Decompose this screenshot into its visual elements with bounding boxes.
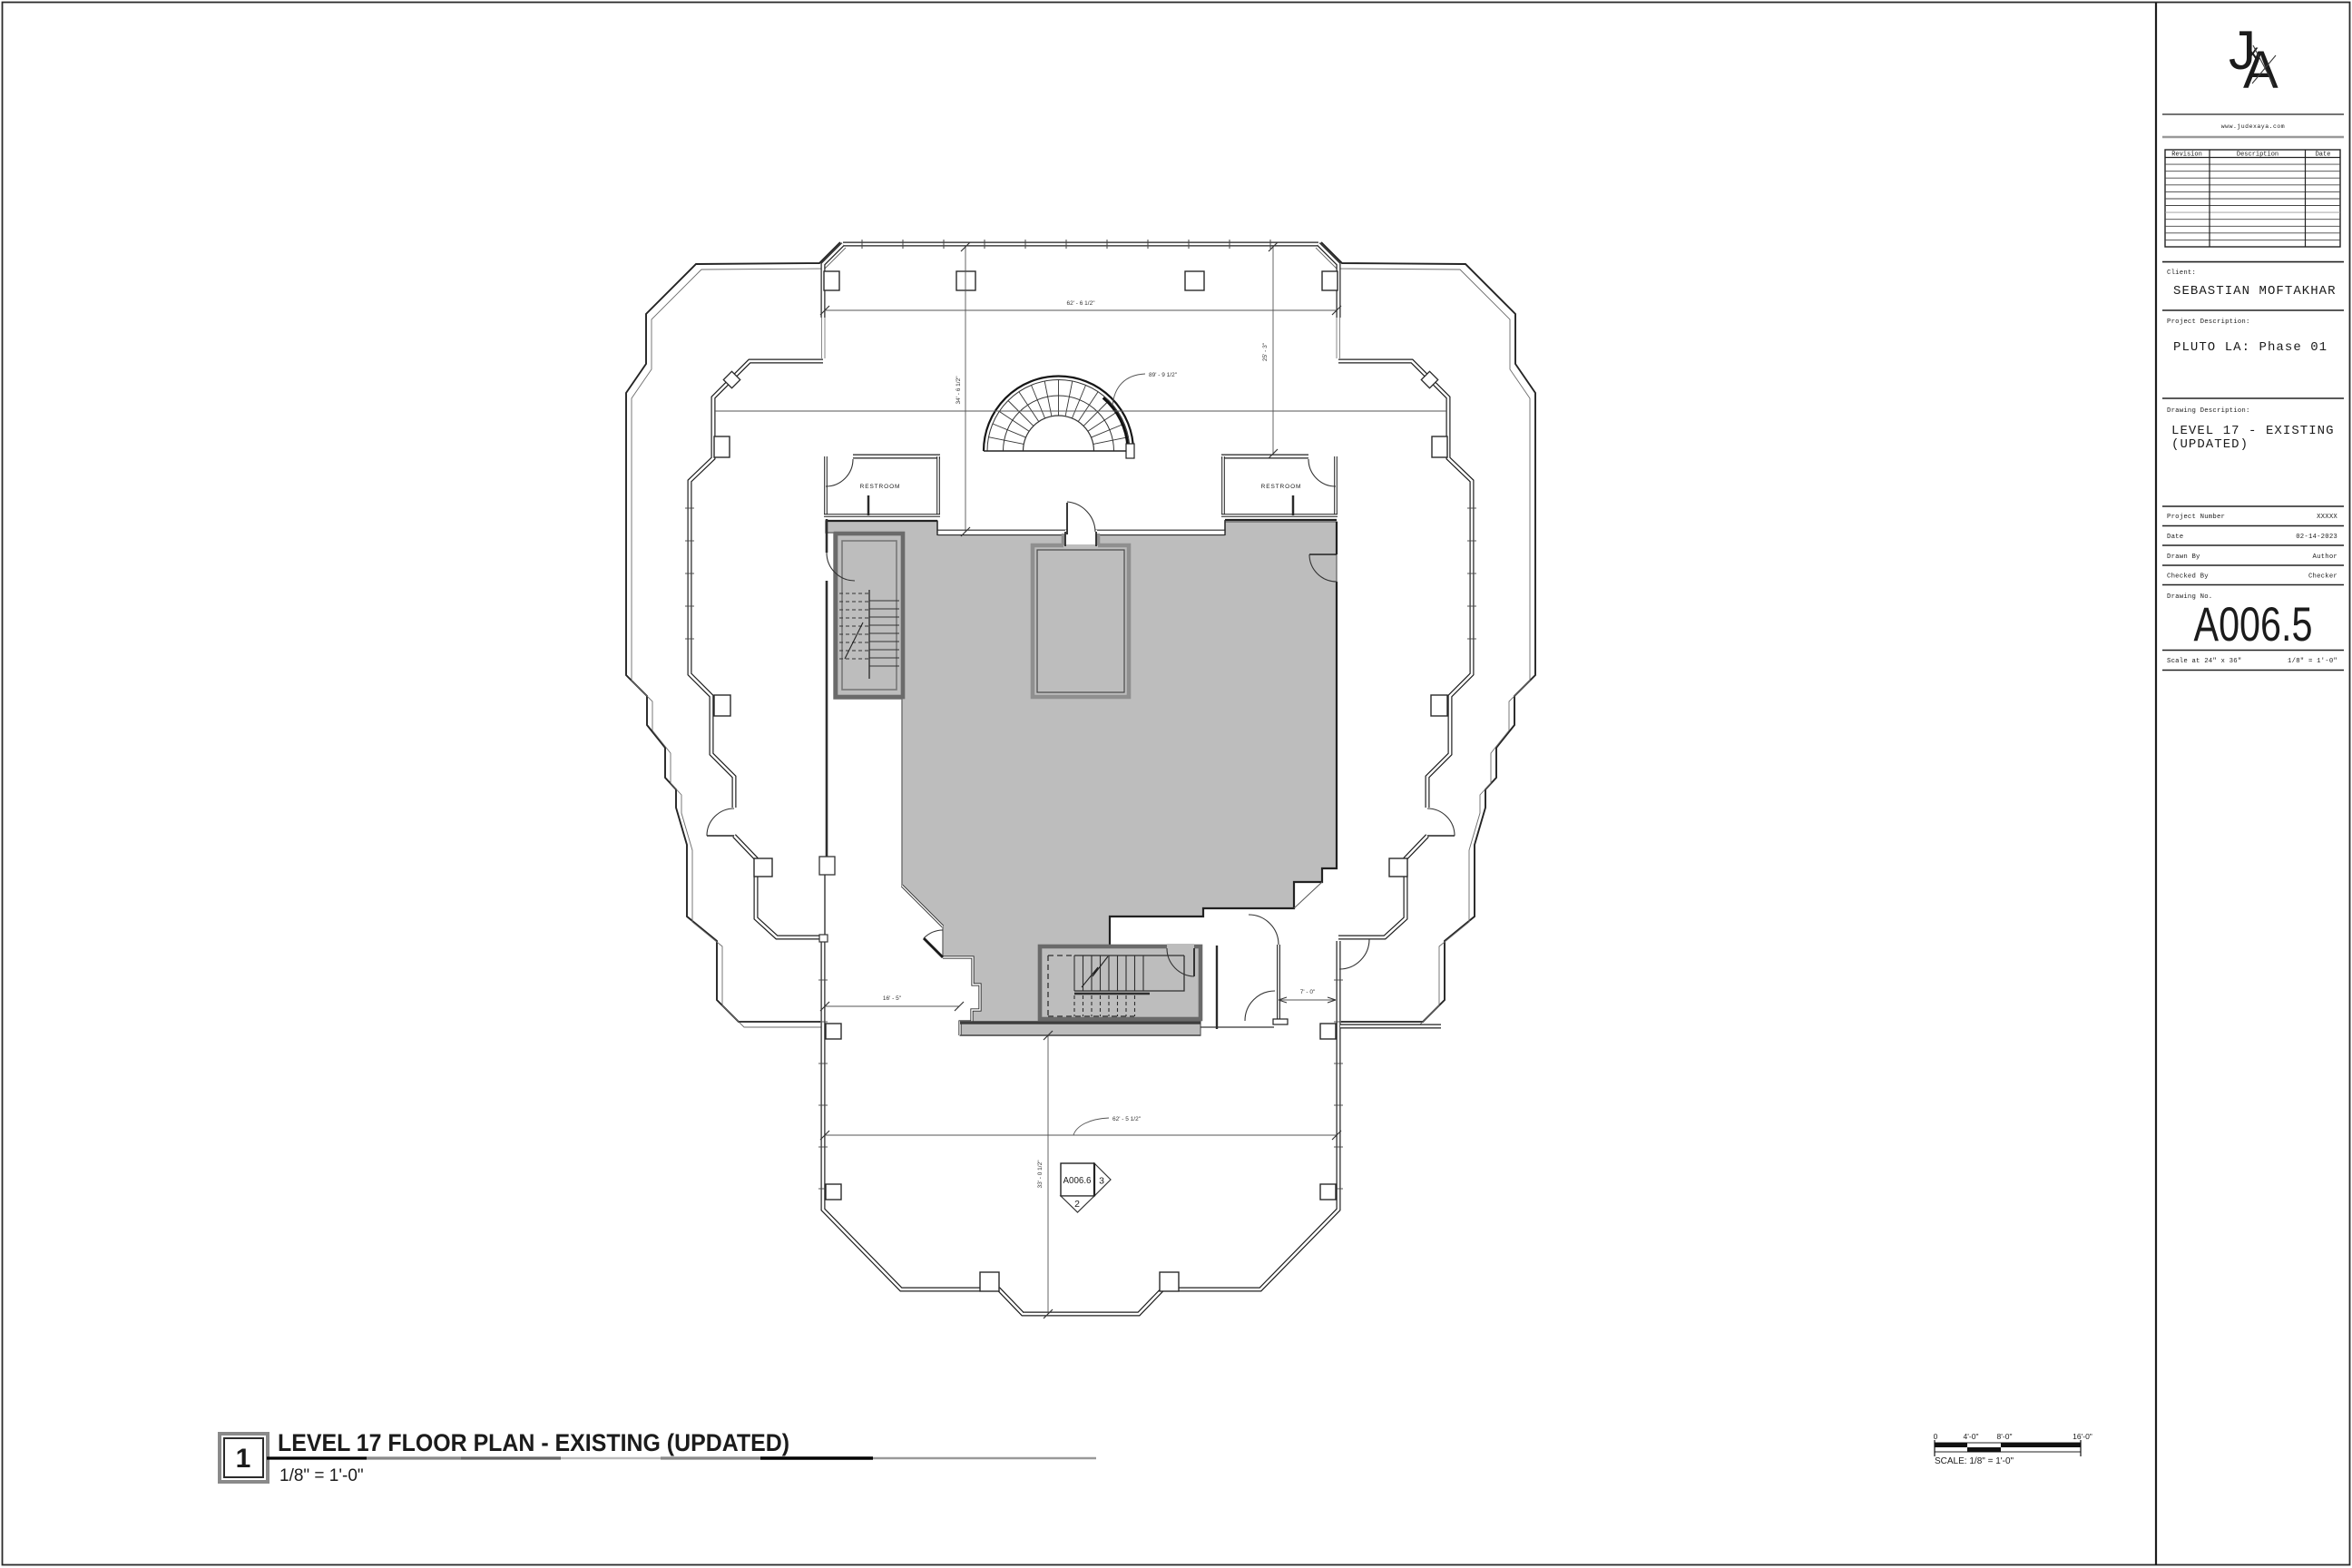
- svg-text:1/8" = 1'-0": 1/8" = 1'-0": [279, 1466, 364, 1485]
- svg-text:16' - 5": 16' - 5": [883, 995, 902, 1002]
- svg-text:62' - 5 1/2": 62' - 5 1/2": [1112, 1116, 1142, 1122]
- svg-text:Drawn By: Drawn By: [2167, 554, 2200, 561]
- svg-text:Drawing Description:: Drawing Description:: [2167, 407, 2250, 415]
- svg-text:Description: Description: [2237, 152, 2278, 159]
- svg-text:A: A: [2243, 41, 2278, 100]
- svg-text:Checker: Checker: [2308, 573, 2337, 581]
- svg-text:3: 3: [1099, 1176, 1104, 1187]
- svg-text:A006.6: A006.6: [1063, 1176, 1092, 1186]
- svg-text:Date: Date: [2316, 152, 2331, 159]
- svg-text:62' - 6 1/2": 62' - 6 1/2": [1066, 300, 1095, 307]
- svg-text:34' - 6 1/2": 34' - 6 1/2": [955, 376, 962, 405]
- svg-text:Client:: Client:: [2167, 269, 2196, 277]
- svg-text:PLUTO LA: Phase 01: PLUTO LA: Phase 01: [2173, 340, 2327, 355]
- svg-text:8'-0": 8'-0": [1997, 1432, 2013, 1441]
- svg-text:16'-0": 16'-0": [2073, 1432, 2092, 1441]
- svg-text:Revision: Revision: [2171, 152, 2202, 159]
- svg-text:RESTROOM: RESTROOM: [1261, 484, 1302, 490]
- svg-text:02-14-2023: 02-14-2023: [2296, 534, 2337, 541]
- svg-text:Checked By: Checked By: [2167, 573, 2209, 581]
- svg-text:2: 2: [1074, 1199, 1080, 1210]
- svg-text:1: 1: [236, 1444, 251, 1474]
- svg-text:SCALE: 1/8" = 1'-0": SCALE: 1/8" = 1'-0": [1935, 1456, 2014, 1466]
- svg-text:25' - 3": 25' - 3": [1262, 342, 1269, 361]
- svg-text:SEBASTIAN MOFTAKHAR: SEBASTIAN MOFTAKHAR: [2173, 284, 2337, 299]
- svg-text:www.judexaya.com: www.judexaya.com: [2221, 123, 2285, 130]
- svg-text:Scale at 24" x 36": Scale at 24" x 36": [2167, 658, 2241, 665]
- svg-text:4'-0": 4'-0": [1964, 1432, 1979, 1441]
- svg-text:89' - 9 1/2": 89' - 9 1/2": [1149, 372, 1178, 378]
- svg-text:0: 0: [1934, 1432, 1938, 1441]
- svg-text:RESTROOM: RESTROOM: [860, 484, 901, 490]
- svg-text:Date: Date: [2167, 534, 2183, 541]
- svg-text:LEVEL 17 - EXISTING: LEVEL 17 - EXISTING: [2171, 424, 2335, 438]
- svg-text:Author: Author: [2313, 554, 2337, 561]
- svg-text:Project Number: Project Number: [2167, 514, 2225, 521]
- svg-text:Project Description:: Project Description:: [2167, 318, 2250, 326]
- svg-text:XXXXX: XXXXX: [2317, 514, 2337, 521]
- svg-text:7' - 0": 7' - 0": [1300, 989, 1316, 995]
- svg-text:33' - 0 1/2": 33' - 0 1/2": [1037, 1160, 1044, 1189]
- svg-text:A006.5: A006.5: [2194, 598, 2313, 652]
- svg-text:1/8" = 1'-0": 1/8" = 1'-0": [2288, 658, 2337, 665]
- svg-text:(UPDATED): (UPDATED): [2171, 437, 2249, 452]
- svg-text:LEVEL 17 FLOOR PLAN - EXISTING: LEVEL 17 FLOOR PLAN - EXISTING (UPDATED): [278, 1429, 789, 1456]
